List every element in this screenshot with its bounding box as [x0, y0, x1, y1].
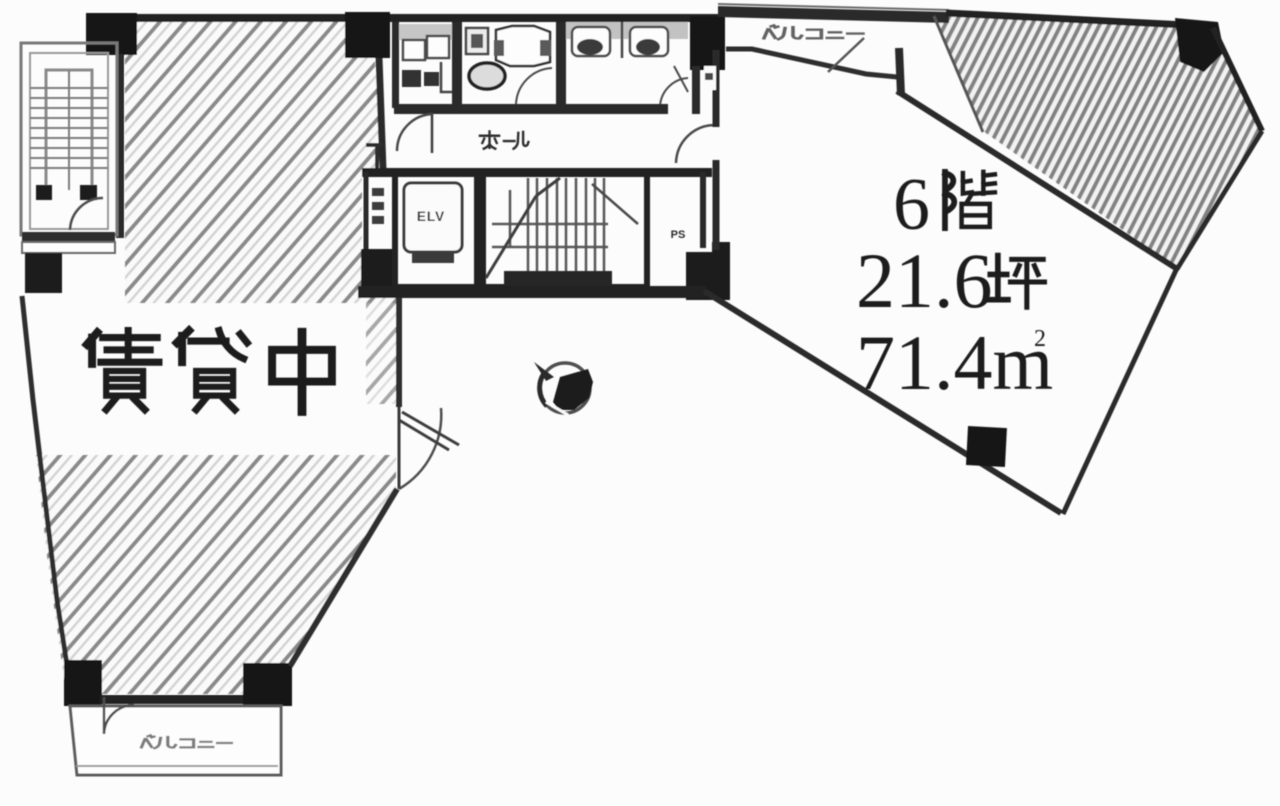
svg-text:71.4m: 71.4m — [856, 319, 1053, 406]
svg-text:21.6: 21.6 — [856, 237, 993, 324]
svg-text:PS: PS — [671, 229, 686, 241]
svg-text:2: 2 — [1034, 326, 1046, 352]
svg-text:ELV: ELV — [417, 209, 445, 224]
svg-text:6: 6 — [893, 164, 930, 246]
